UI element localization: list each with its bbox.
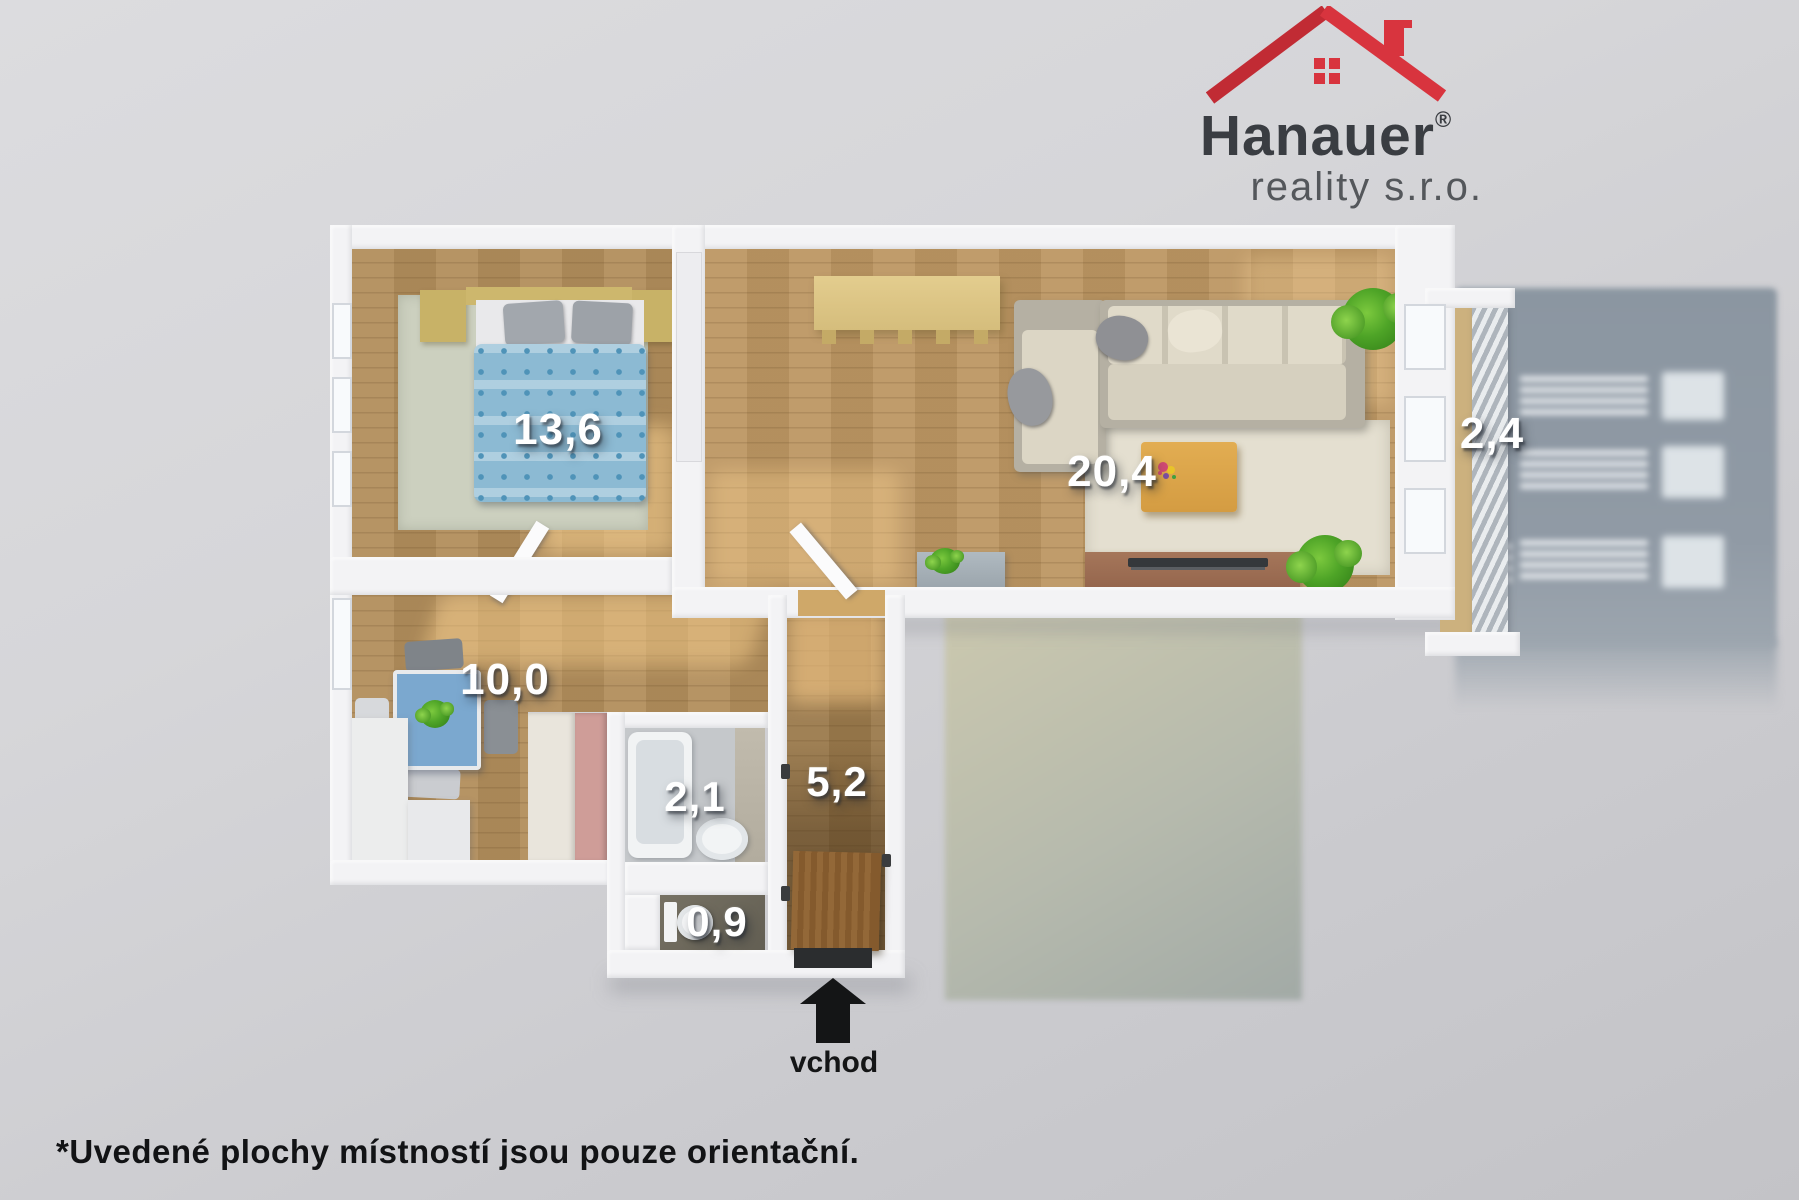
living-window-1 — [1404, 304, 1446, 370]
outer-wall-top — [330, 225, 1455, 249]
area-label-bathroom: 2,1 — [664, 773, 725, 821]
dining-table-plant — [420, 700, 450, 728]
hall-door-handle-1 — [781, 764, 790, 779]
wall-wc-left — [625, 895, 660, 950]
area-label-wc: 0,9 — [686, 898, 747, 946]
bedroom-window-2 — [332, 377, 352, 433]
living-window-2 — [1404, 396, 1446, 462]
hall-door-handle-2 — [781, 886, 790, 901]
wall-bath-left — [607, 712, 625, 978]
logo-brand-name: Hanauer® — [1163, 108, 1489, 165]
logo-roof-icon — [1206, 6, 1446, 106]
nightstand-left — [420, 290, 466, 342]
floorplan-canvas: 13,6 20,4 2,4 10,0 2,1 5,2 0,9 vchod Han… — [0, 0, 1799, 1200]
dining-chair-right — [484, 700, 518, 754]
hall-door-handle-3 — [882, 854, 891, 867]
bedroom-window-3 — [332, 451, 352, 507]
tv — [1128, 558, 1268, 567]
sofa-seat-cushions — [1108, 364, 1346, 420]
bed-pillow-right — [571, 300, 633, 345]
entry-door — [791, 851, 882, 951]
entry-doormat — [794, 948, 872, 968]
ground-shadow-beige — [945, 608, 1302, 1000]
coffee-table-flowers — [1158, 462, 1168, 472]
sideboard-legs — [822, 330, 992, 344]
area-label-hallway: 5,2 — [806, 758, 867, 806]
balcony-ledge-bottom — [1425, 632, 1520, 656]
wall-living-bottom — [672, 587, 1455, 618]
wall-kitchen-bottom — [330, 860, 610, 885]
entrance-arrow-shaft — [816, 1003, 850, 1043]
company-logo: Hanauer® reality s.r.o. — [1163, 6, 1489, 209]
bathroom-pink-wall — [575, 713, 607, 862]
wall-kitchen-hall-left — [768, 595, 787, 978]
wall-bedroom-kitchen-divider — [330, 557, 672, 595]
kitchen-tall-cabinet — [528, 713, 575, 862]
area-label-balcony: 2,4 — [1460, 409, 1524, 459]
bath-sink — [696, 818, 748, 860]
living-window-3 — [1404, 488, 1446, 554]
kitchen-counter — [408, 800, 470, 862]
bedroom-closet — [676, 252, 702, 462]
toilet-tank — [664, 902, 677, 942]
kitchen-fridge — [352, 718, 408, 862]
living-plant-bottom-right — [1296, 535, 1354, 593]
sideboard — [814, 276, 1000, 330]
area-label-bedroom: 13,6 — [513, 405, 603, 455]
bed-pillow-left — [503, 300, 566, 346]
logo-subtitle: reality s.r.o. — [1163, 165, 1489, 209]
registered-mark: ® — [1435, 107, 1452, 132]
kitchen-window — [332, 598, 352, 690]
footnote: *Uvedené plochy místností jsou pouze ori… — [56, 1133, 859, 1171]
wall-hall-right — [885, 595, 905, 978]
entrance-label: vchod — [790, 1046, 878, 1080]
wall-bath-wc-divider — [625, 862, 768, 895]
hall-sun-patch — [787, 608, 885, 703]
bedroom-window-1 — [332, 303, 352, 359]
entrance-arrow-icon — [800, 978, 866, 1004]
area-label-living-room: 20,4 — [1067, 447, 1157, 497]
wall-bath-top — [607, 712, 768, 728]
dining-chair-top — [404, 638, 464, 672]
desk-plant — [930, 548, 960, 574]
area-label-kitchen: 10,0 — [460, 655, 550, 705]
balcony-railing — [1472, 306, 1508, 640]
dining-chair-bottom — [401, 767, 460, 800]
